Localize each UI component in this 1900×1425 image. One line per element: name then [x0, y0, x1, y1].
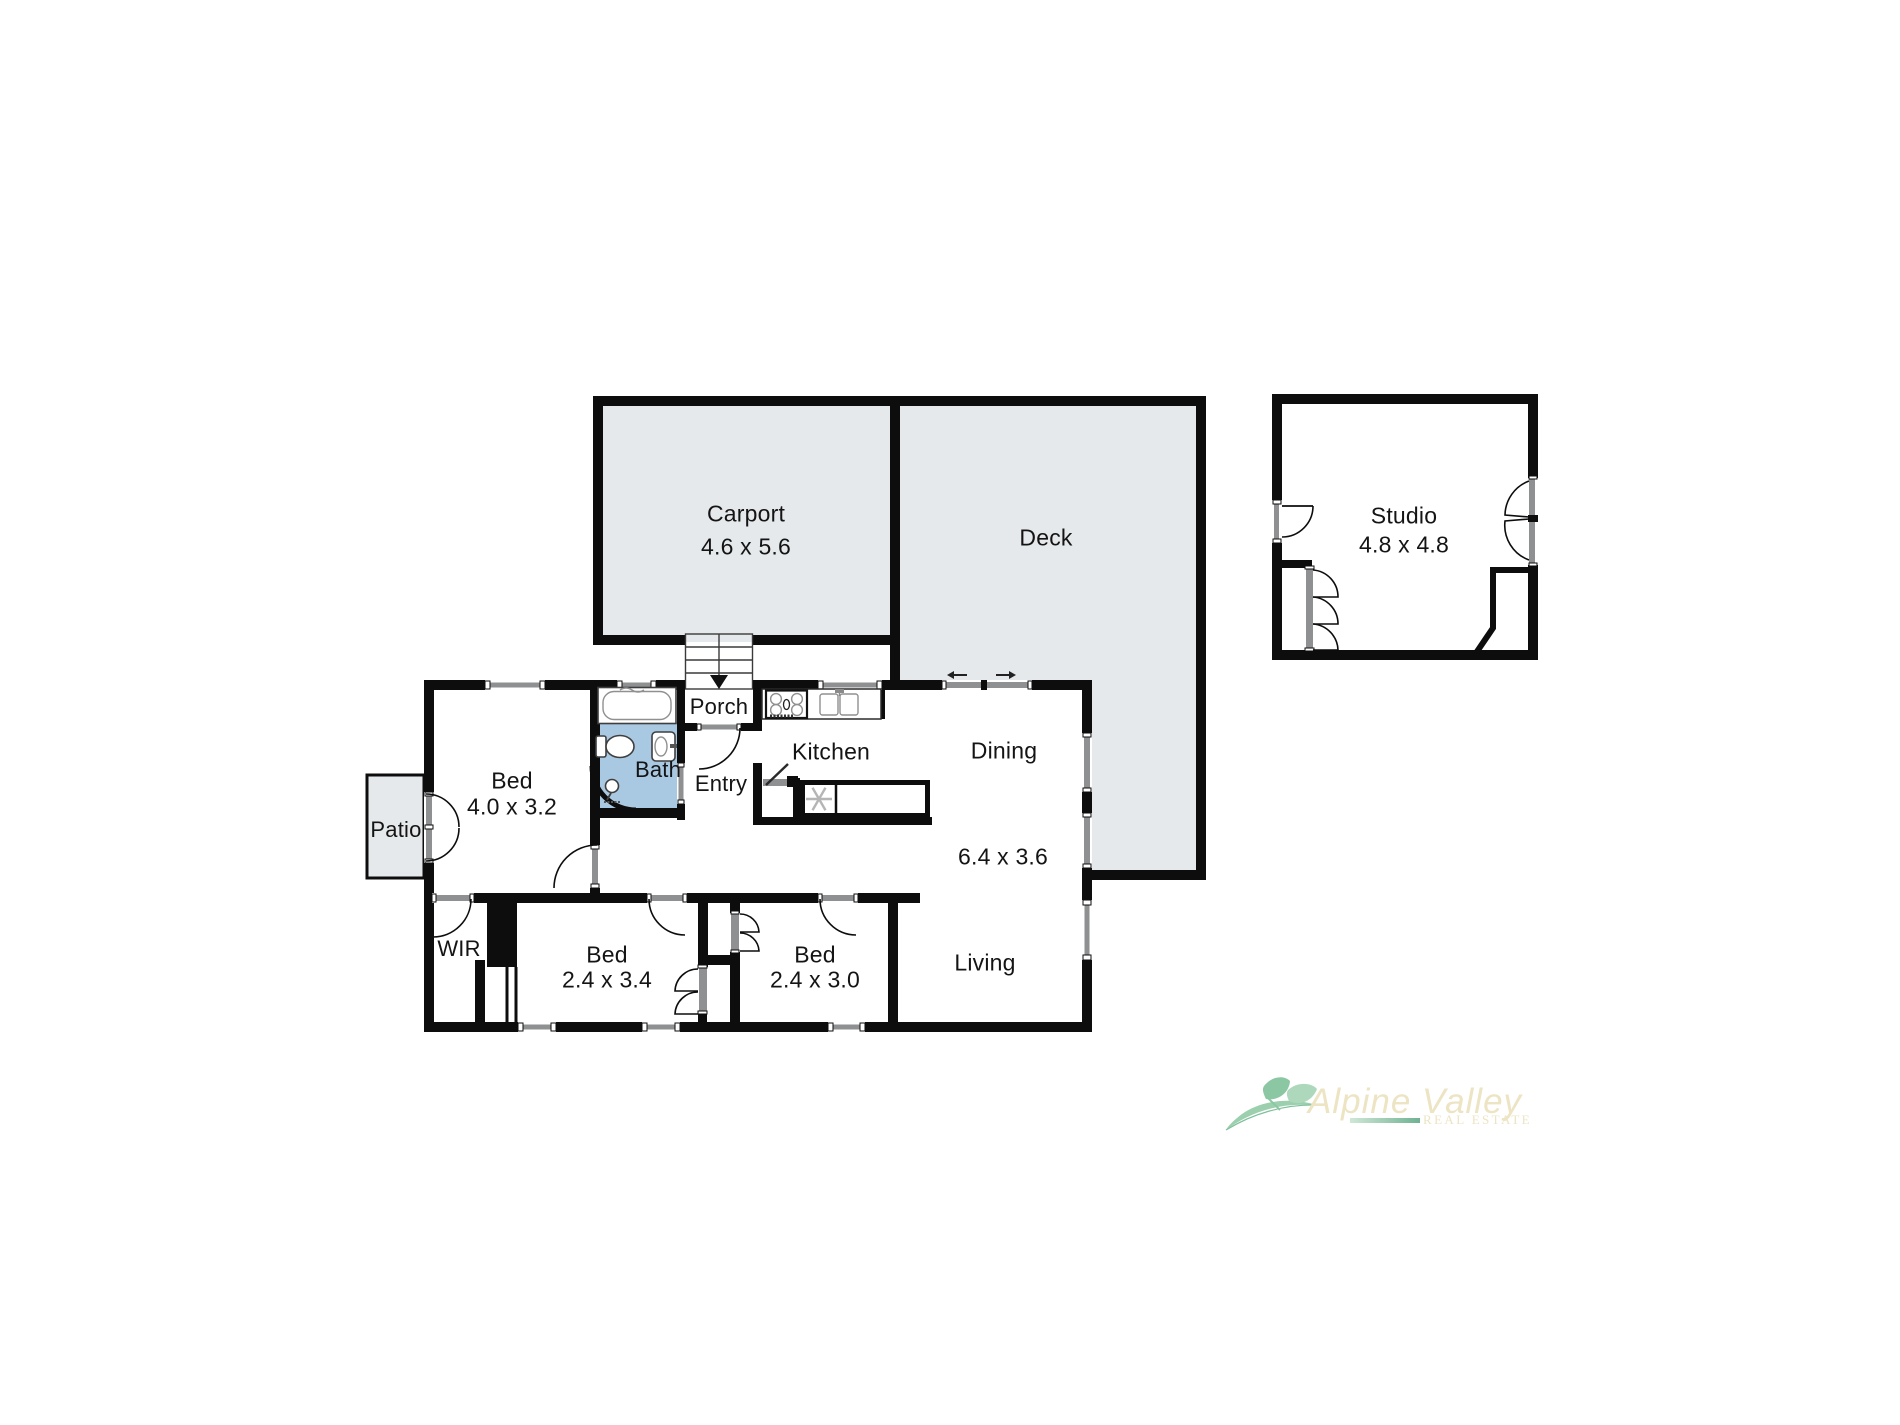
kitchen-label: Kitchen	[792, 739, 870, 766]
wir-label: WIR	[437, 936, 480, 962]
stairs-down-arrow-icon	[710, 675, 728, 689]
carport-dims: 4.6 x 5.6	[701, 534, 791, 561]
deck-floor	[895, 399, 1201, 875]
bed3-dims: 2.4 x 3.0	[770, 967, 860, 994]
logo-divider-bar	[1350, 1118, 1420, 1123]
floorplan-page: Carport 4.6 x 5.6 Deck Studio 4.8 x 4.8 …	[0, 0, 1900, 1425]
porch-label: Porch	[690, 694, 748, 720]
bathtub-icon	[598, 688, 676, 724]
dining-label: Dining	[971, 738, 1037, 765]
entry-label: Entry	[695, 771, 747, 797]
bed2-dims: 2.4 x 3.4	[562, 967, 652, 994]
stove-icon	[766, 691, 807, 719]
right-wall-openings	[1082, 733, 1092, 960]
bed3-label: Bed	[794, 942, 836, 969]
kitchen-island	[803, 781, 928, 817]
stairs	[686, 634, 753, 689]
bath-label: Bath	[635, 757, 681, 783]
patio-french-doors	[424, 792, 459, 863]
bed1-dims: 4.0 x 3.2	[467, 794, 557, 821]
floorplan-canvas	[0, 0, 1900, 1425]
agency-tagline: REAL ESTATE	[1423, 1112, 1532, 1128]
living-dining-dims: 6.4 x 3.6	[958, 844, 1048, 871]
deck-label: Deck	[1019, 525, 1072, 552]
carport-label: Carport	[707, 501, 785, 528]
bed1-label: Bed	[491, 768, 533, 795]
agency-logo: Alpine Valley REAL ESTATE	[1222, 1072, 1522, 1138]
patio-label: Patio	[370, 817, 421, 843]
studio-label: Studio	[1371, 503, 1437, 530]
studio-corner-structure	[1474, 570, 1532, 656]
bed2-label: Bed	[586, 942, 628, 969]
toilet-icon	[596, 736, 634, 758]
studio-dims: 4.8 x 4.8	[1359, 532, 1449, 559]
living-label: Living	[954, 950, 1015, 977]
